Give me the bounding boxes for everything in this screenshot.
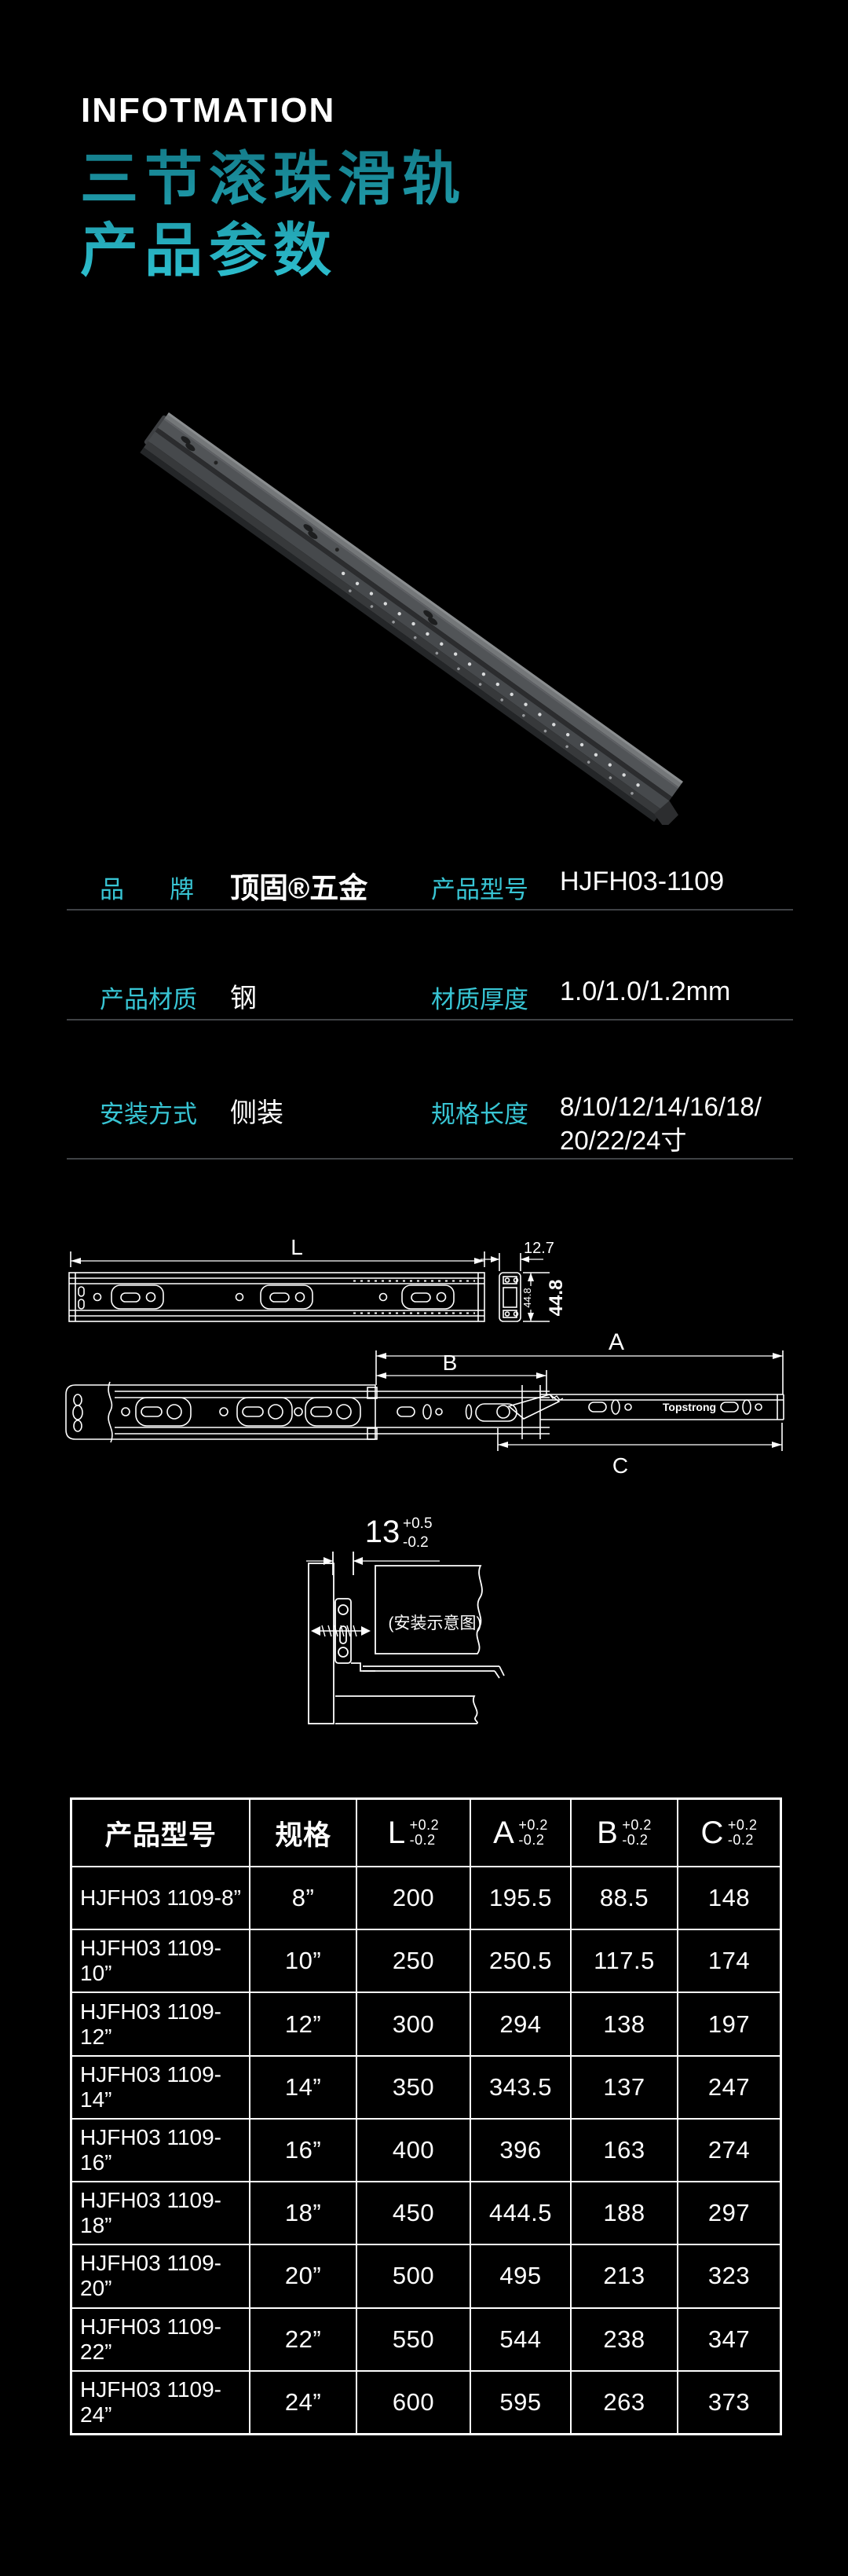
table-cell-spec: 20” (250, 2245, 356, 2307)
tolerance-plus: +0.2 (622, 1818, 652, 1833)
table-cell-B: 163 (572, 2120, 677, 2181)
dim-44-8-big-label: 44.8 (546, 1280, 567, 1317)
table-cell-model: HJFH03 1109-10” (72, 1930, 249, 1992)
table-cell-C: 274 (678, 2120, 780, 2181)
page-title-line2: 产品参数 (80, 214, 466, 286)
table-cell-L: 500 (357, 2245, 470, 2307)
spec-label-install: 安装方式 (100, 1094, 197, 1130)
drawer-side-panel (375, 1566, 482, 1654)
dim-letter: L (388, 1816, 406, 1851)
table-cell-model: HJFH03 1109-8” (72, 1867, 249, 1929)
dim-tolerances: +0.2-0.2 (728, 1818, 758, 1848)
table-cell-B: 88.5 (572, 1867, 677, 1929)
dim-letter: C (701, 1816, 724, 1851)
dim-tolerances: +0.2-0.2 (518, 1818, 548, 1848)
table-cell-C: 373 (678, 2372, 780, 2433)
dim-L-label: L (291, 1235, 303, 1259)
table-cell-L: 250 (357, 1930, 470, 1992)
table-cell-model: HJFH03 1109-14” (72, 2057, 249, 2118)
table-cell-L: 400 (357, 2120, 470, 2181)
cabinet-bottom-board (335, 1696, 477, 1724)
table-cell-A: 250.5 (471, 1930, 570, 1992)
dim-13-tol-minus: -0.2 (403, 1534, 429, 1551)
table-header-spec: 规格 (250, 1800, 356, 1866)
dim-A-label: A (609, 1329, 624, 1355)
spec-value-material: 钢 (230, 977, 257, 1015)
table-cell-A: 595 (471, 2372, 570, 2433)
tolerance-plus: +0.2 (728, 1818, 758, 1833)
table-cell-C: 297 (678, 2182, 780, 2244)
spec-table: 产品型号规格L+0.2-0.2A+0.2-0.2B+0.2-0.2C+0.2-0… (70, 1797, 782, 2435)
table-cell-C: 197 (678, 1993, 780, 2054)
table-cell-B: 188 (572, 2182, 677, 2244)
dim-13-tol-plus: +0.5 (403, 1515, 433, 1532)
spec-value-brand: 顶固®五金 (230, 864, 367, 907)
table-cell-C: 148 (678, 1867, 780, 1929)
cabinet-panel (309, 1563, 334, 1724)
spec-label-model: 产品型号 (431, 870, 528, 905)
spec-value-thickness: 1.0/1.0/1.2mm (560, 977, 730, 1007)
drawing-installation (306, 1552, 504, 1724)
eyebrow-title: INFOTMATION (81, 91, 335, 130)
dim-44-8-small-label: 44.8 (521, 1288, 533, 1307)
table-header-dim-B: B+0.2-0.2 (572, 1800, 677, 1866)
slot-group (94, 1285, 455, 1309)
table-header-model: 产品型号 (72, 1800, 249, 1866)
tolerance-minus: -0.2 (518, 1833, 544, 1848)
dim-C-label: C (612, 1453, 628, 1478)
table-cell-model: HJFH03 1109-22” (72, 2309, 249, 2370)
spec-value-model: HJFH03-1109 (560, 867, 724, 897)
table-header-dim-L: L+0.2-0.2 (357, 1800, 470, 1866)
divider (67, 1019, 793, 1021)
dim-B-label: B (443, 1350, 458, 1375)
table-cell-spec: 16” (250, 2120, 356, 2181)
table-cell-spec: 18” (250, 2182, 356, 2244)
page-title-line1: 三节滚珠滑轨 (80, 143, 466, 214)
table-cell-A: 495 (471, 2245, 570, 2307)
tolerance-plus: +0.2 (518, 1818, 548, 1833)
table-cell-model: HJFH03 1109-24” (72, 2372, 249, 2433)
table-cell-B: 138 (572, 1993, 677, 2054)
technical-drawings: L 12.7 44.8 44.8 (0, 1206, 848, 1756)
dim-letter: B (597, 1816, 618, 1851)
spec-label-lengths: 规格长度 (431, 1094, 528, 1130)
table-cell-L: 450 (357, 2182, 470, 2244)
table-cell-model: HJFH03 1109-20” (72, 2245, 249, 2307)
table-cell-model: HJFH03 1109-16” (72, 2120, 249, 2181)
spec-value-lengths-line1: 8/10/12/14/16/18/ (560, 1090, 762, 1123)
spec-value-install: 侧装 (230, 1091, 283, 1130)
table-header-dim-C: C+0.2-0.2 (678, 1800, 780, 1866)
table-cell-C: 323 (678, 2245, 780, 2307)
dim-tolerances: +0.2-0.2 (622, 1818, 652, 1848)
screw-icon (311, 1625, 371, 1636)
dim-letter: A (493, 1816, 514, 1851)
table-cell-C: 347 (678, 2309, 780, 2370)
table-cell-spec: 24” (250, 2372, 356, 2433)
spec-value-lengths-line2: 20/22/24寸 (560, 1123, 762, 1157)
table-cell-L: 550 (357, 2309, 470, 2370)
spec-label-material: 产品材质 (100, 980, 197, 1015)
page-title: 三节滚珠滑轨 产品参数 (80, 143, 466, 286)
table-cell-C: 247 (678, 2057, 780, 2118)
tolerance-minus: -0.2 (622, 1833, 648, 1848)
table-cell-spec: 14” (250, 2057, 356, 2118)
table-header-dim-A: A+0.2-0.2 (471, 1800, 570, 1866)
tolerance-plus: +0.2 (410, 1818, 440, 1833)
product-spec-page: INFOTMATION 三节滚珠滑轨 产品参数 (0, 0, 848, 2576)
install-caption: (安装示意图) (389, 1614, 482, 1632)
table-cell-B: 137 (572, 2057, 677, 2118)
spec-value-lengths: 8/10/12/14/16/18/ 20/22/24寸 (560, 1090, 762, 1157)
drawer-slide-photo (137, 411, 696, 825)
table-cell-A: 396 (471, 2120, 570, 2181)
table-cell-A: 343.5 (471, 2057, 570, 2118)
spec-label-brand: 品牌 (100, 870, 239, 905)
table-cell-A: 294 (471, 1993, 570, 2054)
table-cell-L: 350 (357, 2057, 470, 2118)
tolerance-minus: -0.2 (410, 1833, 436, 1848)
table-cell-spec: 8” (250, 1867, 356, 1929)
spec-label-thickness: 材质厚度 (431, 980, 528, 1015)
table-cell-A: 544 (471, 2309, 570, 2370)
table-cell-B: 213 (572, 2245, 677, 2307)
table-cell-spec: 22” (250, 2309, 356, 2370)
table-cell-model: HJFH03 1109-18” (72, 2182, 249, 2244)
table-cell-model: HJFH03 1109-12” (72, 1993, 249, 2054)
dim-13-label: 13 (365, 1515, 400, 1549)
tolerance-minus: -0.2 (728, 1833, 754, 1848)
table-cell-B: 238 (572, 2309, 677, 2370)
table-cell-spec: 12” (250, 1993, 356, 2054)
table-cell-C: 174 (678, 1930, 780, 1992)
dim-12-7-label: 12.7 (524, 1240, 554, 1257)
drawing-collapsed-view (69, 1251, 484, 1321)
table-cell-L: 200 (357, 1867, 470, 1929)
rail-brand-text: Topstrong (663, 1401, 716, 1413)
table-cell-A: 444.5 (471, 2182, 570, 2244)
table-cell-B: 117.5 (572, 1930, 677, 1992)
product-photo (110, 369, 754, 825)
dim-tolerances: +0.2-0.2 (410, 1818, 440, 1848)
table-cell-L: 600 (357, 2372, 470, 2433)
divider (67, 909, 793, 911)
divider (67, 1158, 793, 1160)
drawing-cross-section (481, 1253, 550, 1321)
table-cell-L: 300 (357, 1993, 470, 2054)
table-cell-B: 263 (572, 2372, 677, 2433)
table-cell-spec: 10” (250, 1930, 356, 1992)
table-cell-A: 195.5 (471, 1867, 570, 1929)
